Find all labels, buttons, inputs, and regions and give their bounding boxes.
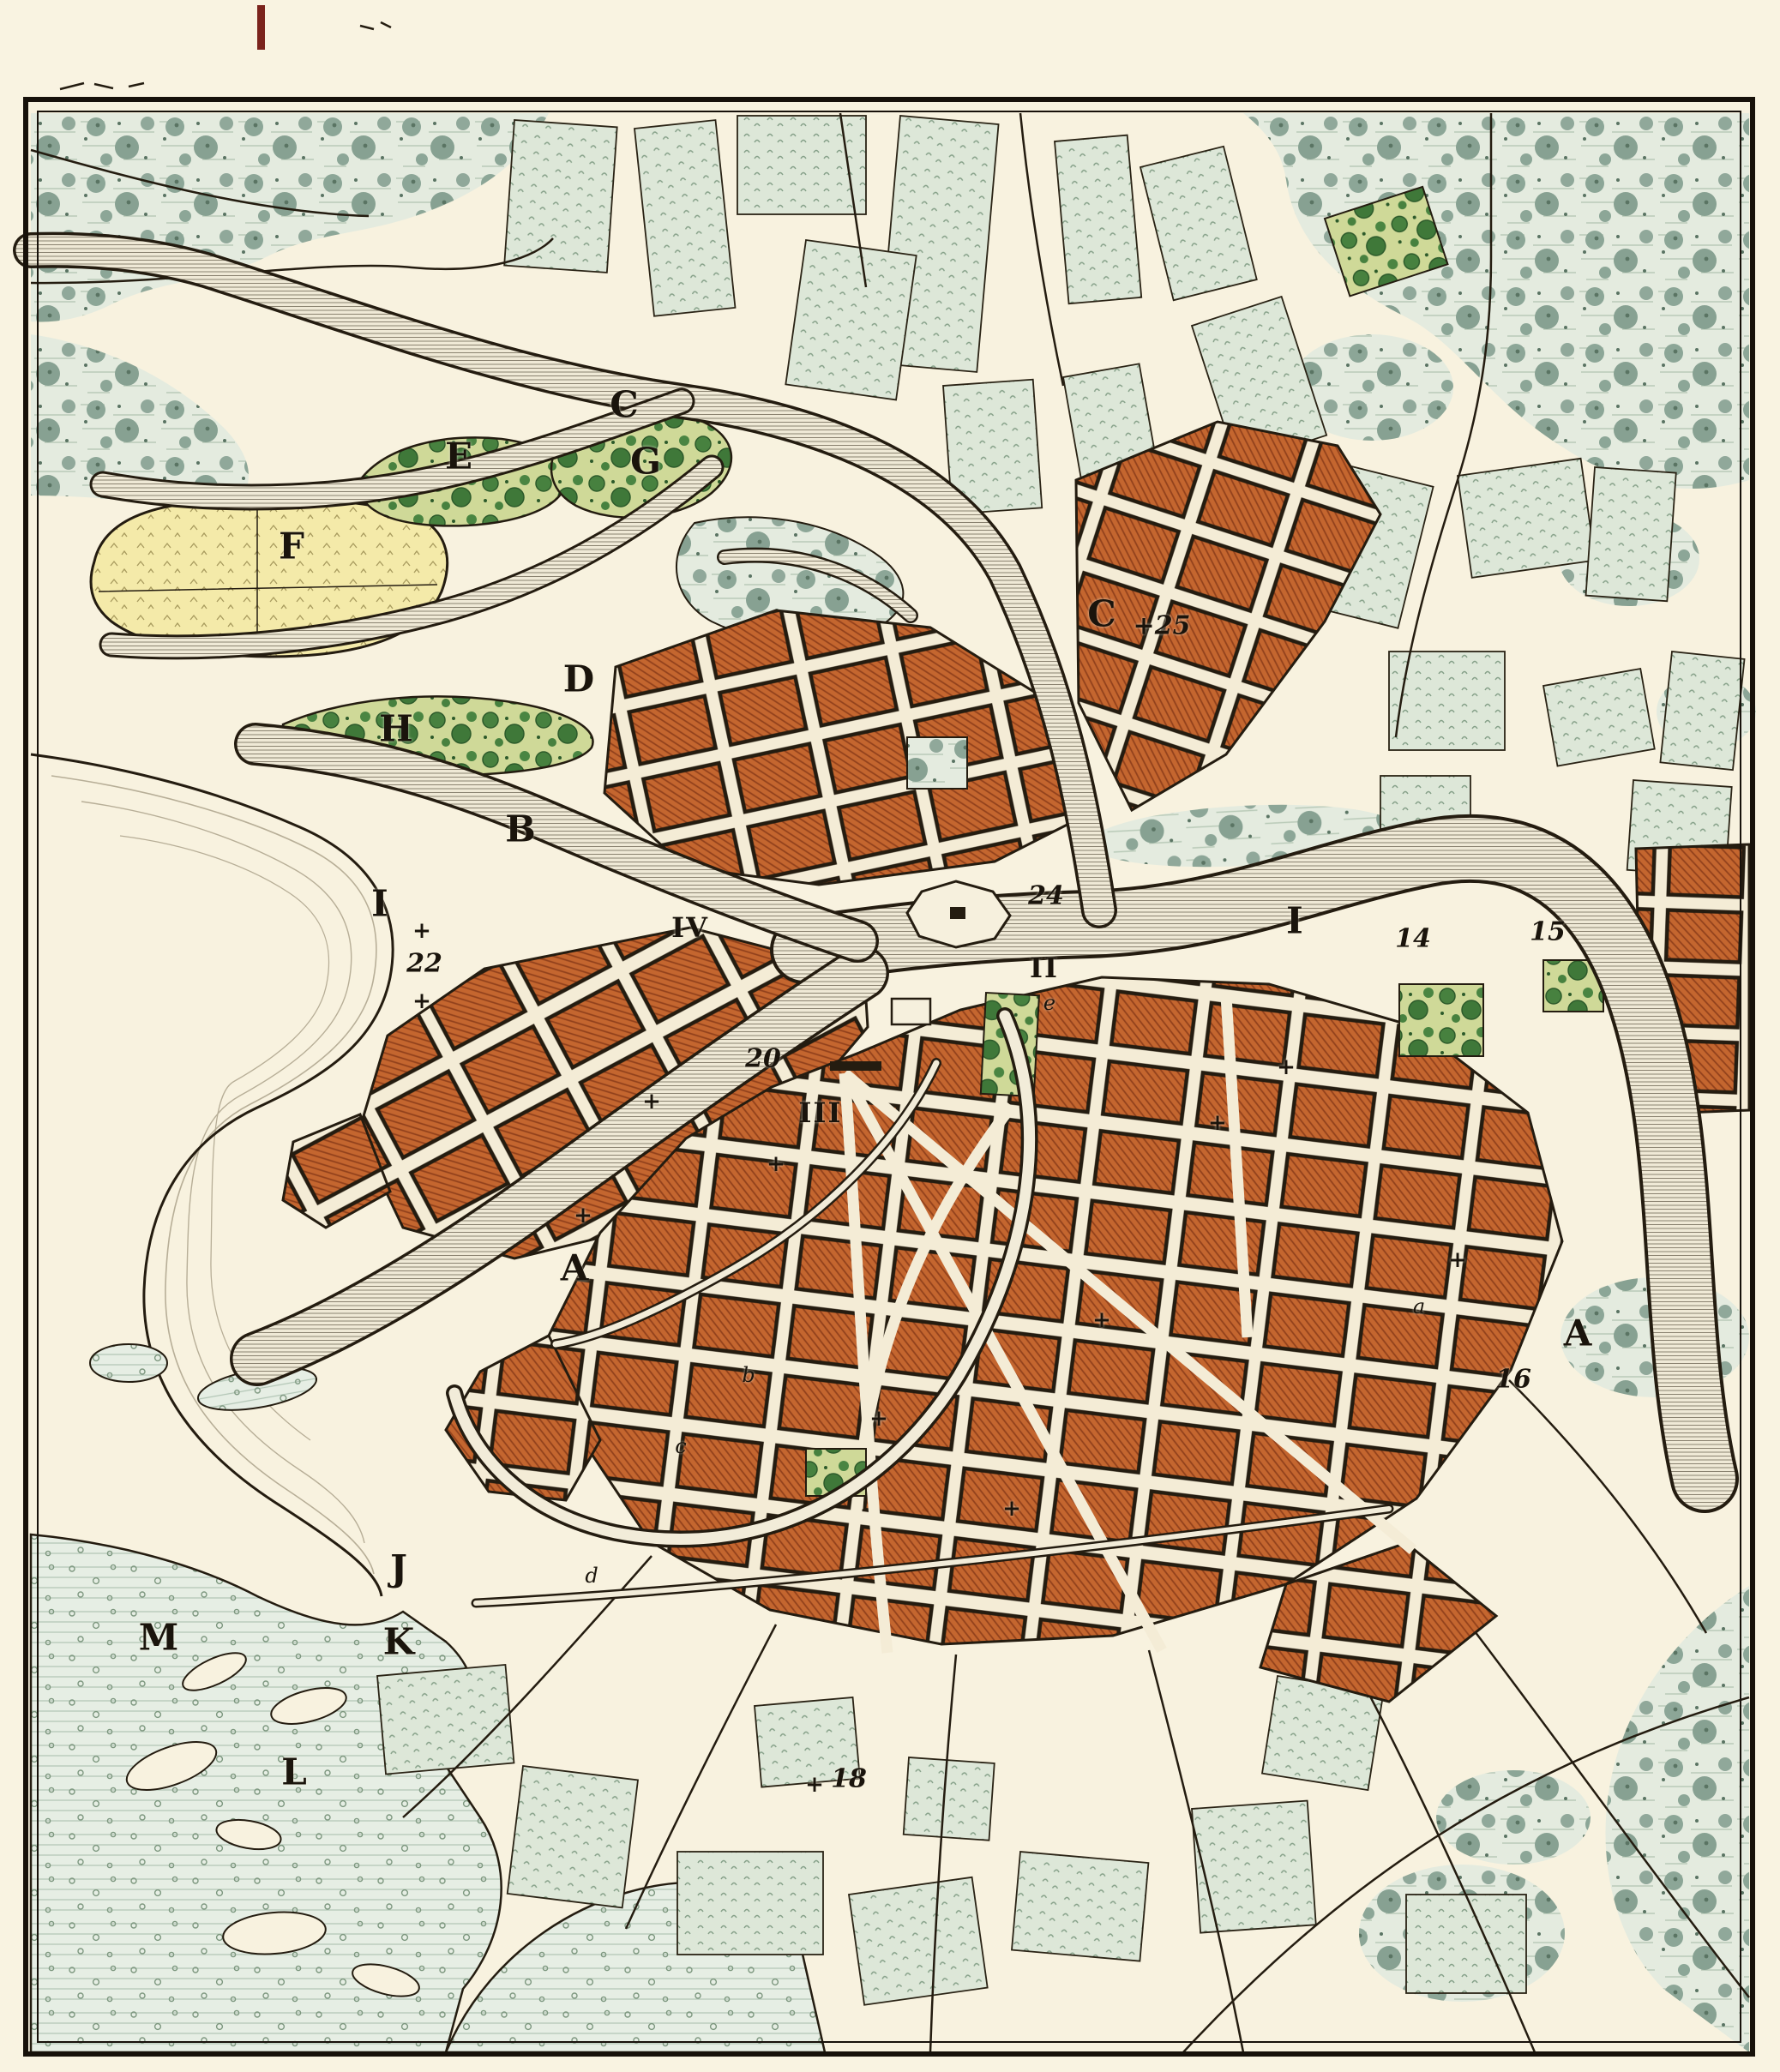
palace-block (892, 999, 930, 1024)
fortress-cathedral (950, 907, 965, 919)
map-page: ПЛАНЪ г. СтПЕТЕРБУРГА. (0, 0, 1780, 2072)
map-area: CEGFDHBICIAAJMKLIIIIIIV+2524222018161514… (0, 0, 1780, 2072)
admiralty-building (830, 1061, 881, 1071)
map-canvas (0, 0, 1780, 2072)
